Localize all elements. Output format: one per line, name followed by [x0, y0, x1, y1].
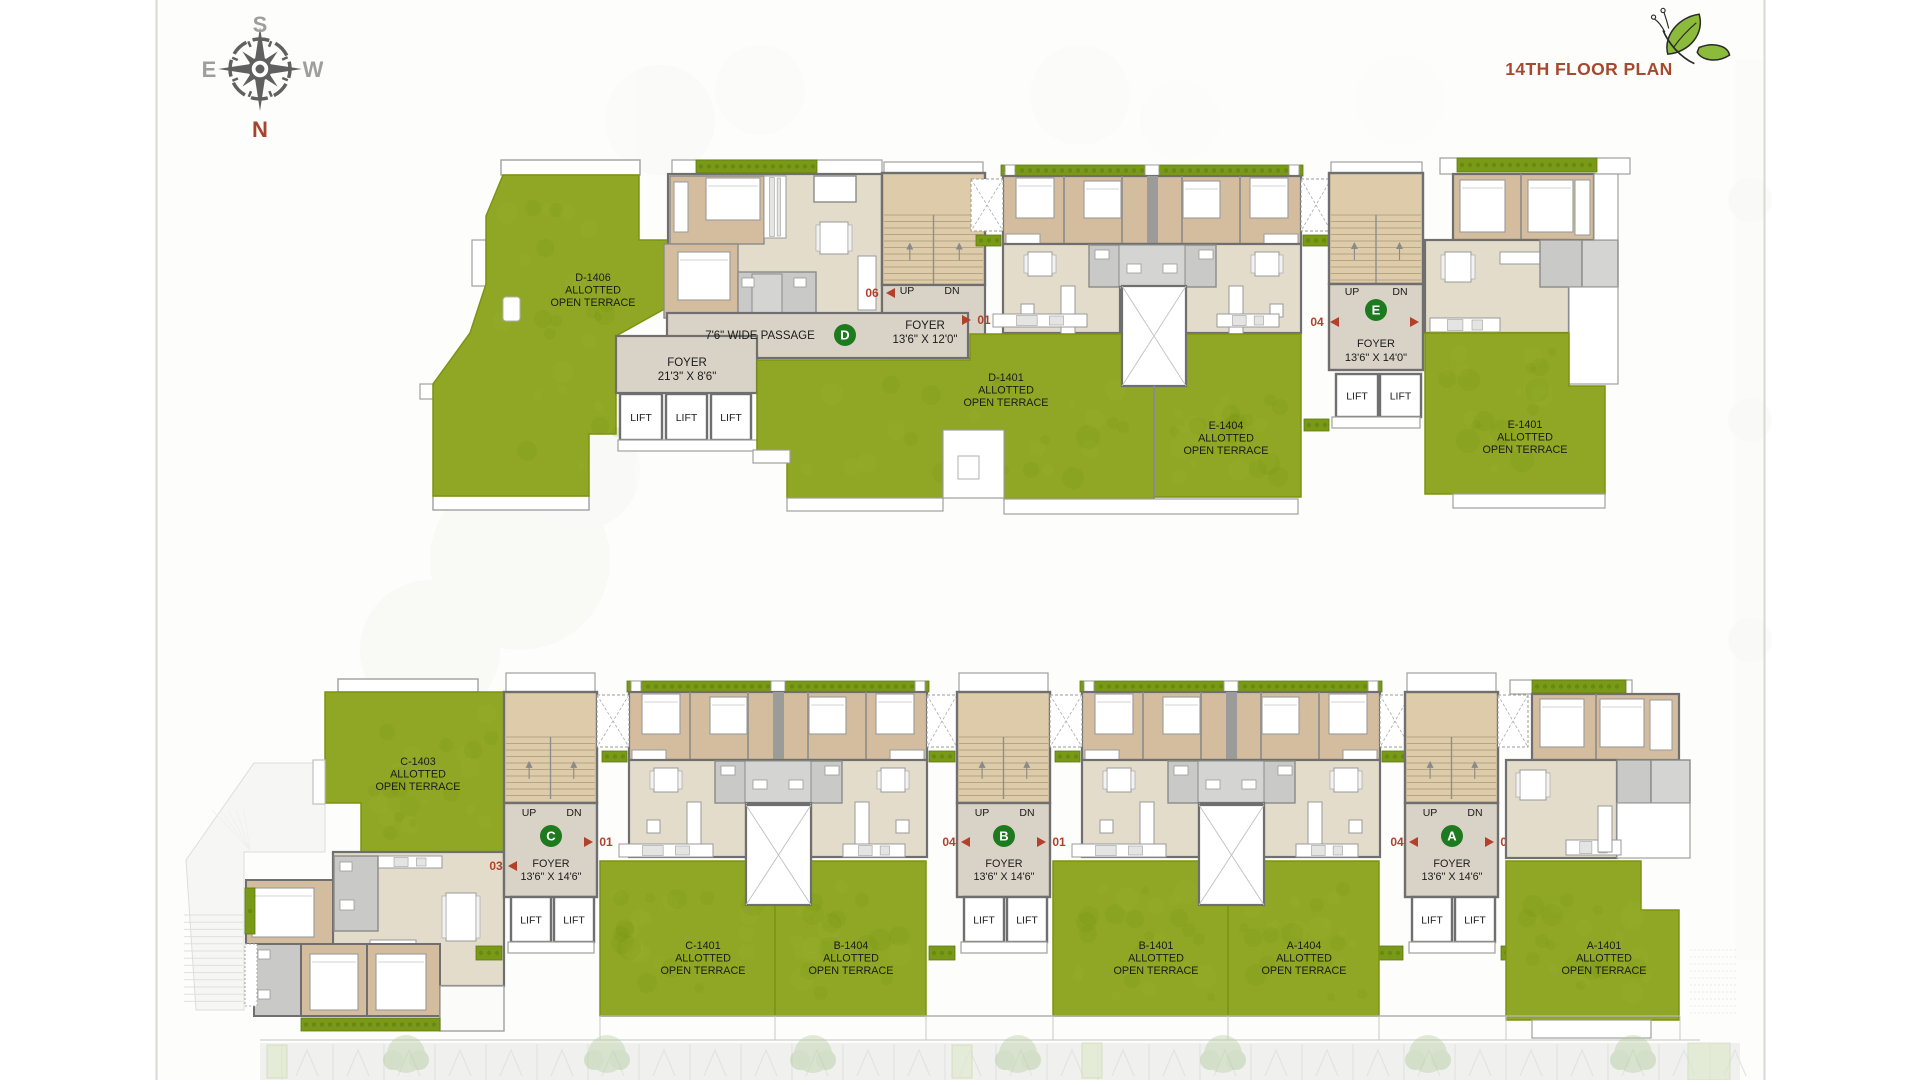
svg-text:B-1401: B-1401 [1139, 940, 1174, 952]
svg-text:OPEN TERRACE: OPEN TERRACE [1562, 965, 1647, 977]
svg-text:E: E [1372, 303, 1381, 318]
svg-text:C-1403: C-1403 [400, 756, 435, 768]
svg-text:DN: DN [1392, 286, 1407, 298]
svg-text:OPEN TERRACE: OPEN TERRACE [376, 781, 461, 793]
svg-text:ALLOTTED: ALLOTTED [1128, 953, 1184, 965]
svg-text:OPEN TERRACE: OPEN TERRACE [551, 297, 636, 309]
svg-text:ALLOTTED: ALLOTTED [978, 385, 1034, 397]
svg-text:N: N [252, 117, 268, 142]
svg-text:D-1406: D-1406 [575, 272, 610, 284]
svg-text:LIFT: LIFT [1421, 915, 1443, 927]
svg-text:OPEN TERRACE: OPEN TERRACE [1483, 444, 1568, 456]
svg-text:ALLOTTED: ALLOTTED [823, 953, 879, 965]
svg-text:E-1404: E-1404 [1209, 420, 1244, 432]
svg-text:7'6" WIDE PASSAGE: 7'6" WIDE PASSAGE [705, 330, 815, 342]
svg-text:UP: UP [522, 807, 537, 819]
svg-text:ALLOTTED: ALLOTTED [1276, 953, 1332, 965]
svg-text:LIFT: LIFT [1390, 391, 1412, 403]
svg-text:13'6" X 14'6": 13'6" X 14'6" [973, 871, 1034, 883]
svg-text:S: S [253, 12, 268, 37]
svg-text:FOYER: FOYER [985, 858, 1022, 870]
svg-text:LIFT: LIFT [563, 915, 585, 927]
svg-text:B: B [999, 829, 1008, 844]
svg-text:LIFT: LIFT [720, 412, 742, 424]
svg-text:B-1404: B-1404 [834, 940, 869, 952]
svg-text:DN: DN [1467, 807, 1482, 819]
svg-text:LIFT: LIFT [520, 915, 542, 927]
svg-text:04: 04 [1390, 835, 1404, 849]
svg-text:FOYER: FOYER [1357, 338, 1395, 350]
svg-text:OPEN TERRACE: OPEN TERRACE [1262, 965, 1347, 977]
svg-text:ALLOTTED: ALLOTTED [1576, 953, 1632, 965]
svg-text:14TH FLOOR PLAN: 14TH FLOOR PLAN [1505, 59, 1672, 79]
svg-text:FOYER: FOYER [667, 357, 707, 369]
svg-text:13'6" X 14'6": 13'6" X 14'6" [520, 871, 581, 883]
svg-text:UP: UP [1345, 286, 1360, 298]
svg-text:13'6" X 12'0": 13'6" X 12'0" [893, 334, 958, 346]
svg-text:DN: DN [944, 285, 959, 297]
svg-text:LIFT: LIFT [1464, 915, 1486, 927]
svg-text:01: 01 [599, 835, 613, 849]
svg-text:04: 04 [942, 835, 956, 849]
svg-text:OPEN TERRACE: OPEN TERRACE [809, 965, 894, 977]
svg-text:OPEN TERRACE: OPEN TERRACE [661, 965, 746, 977]
svg-text:DN: DN [566, 807, 581, 819]
svg-text:LIFT: LIFT [1016, 915, 1038, 927]
svg-text:ALLOTTED: ALLOTTED [390, 769, 446, 781]
svg-text:06: 06 [865, 286, 879, 300]
svg-text:03: 03 [489, 859, 503, 873]
svg-text:FOYER: FOYER [1433, 858, 1470, 870]
svg-text:ALLOTTED: ALLOTTED [1198, 433, 1254, 445]
svg-text:FOYER: FOYER [905, 320, 945, 332]
svg-text:13'6" X 14'6": 13'6" X 14'6" [1421, 871, 1482, 883]
svg-text:OPEN TERRACE: OPEN TERRACE [1184, 445, 1269, 457]
svg-text:C-1401: C-1401 [685, 940, 720, 952]
svg-text:01: 01 [1052, 835, 1066, 849]
svg-text:LIFT: LIFT [630, 412, 652, 424]
svg-text:21'3" X 8'6": 21'3" X 8'6" [658, 371, 717, 383]
svg-text:E: E [202, 57, 217, 82]
svg-text:OPEN TERRACE: OPEN TERRACE [964, 397, 1049, 409]
svg-text:ALLOTTED: ALLOTTED [1497, 432, 1553, 444]
svg-text:LIFT: LIFT [973, 915, 995, 927]
svg-text:13'6" X 14'0": 13'6" X 14'0" [1345, 352, 1407, 364]
svg-text:DN: DN [1019, 807, 1034, 819]
svg-text:C: C [546, 829, 556, 844]
svg-text:04: 04 [1310, 315, 1324, 329]
svg-text:W: W [303, 57, 324, 82]
svg-text:LIFT: LIFT [1346, 391, 1368, 403]
svg-text:D: D [840, 328, 849, 343]
svg-text:E-1401: E-1401 [1508, 419, 1543, 431]
svg-text:UP: UP [900, 285, 915, 297]
svg-text:A-1401: A-1401 [1587, 940, 1622, 952]
svg-text:ALLOTTED: ALLOTTED [565, 285, 621, 297]
svg-text:UP: UP [975, 807, 990, 819]
svg-text:ALLOTTED: ALLOTTED [675, 953, 731, 965]
svg-text:A: A [1447, 829, 1457, 844]
svg-text:OPEN TERRACE: OPEN TERRACE [1114, 965, 1199, 977]
svg-text:UP: UP [1423, 807, 1438, 819]
svg-text:D-1401: D-1401 [988, 372, 1023, 384]
svg-text:01: 01 [977, 313, 991, 327]
svg-text:LIFT: LIFT [676, 412, 698, 424]
svg-text:A-1404: A-1404 [1287, 940, 1322, 952]
svg-text:FOYER: FOYER [532, 858, 569, 870]
